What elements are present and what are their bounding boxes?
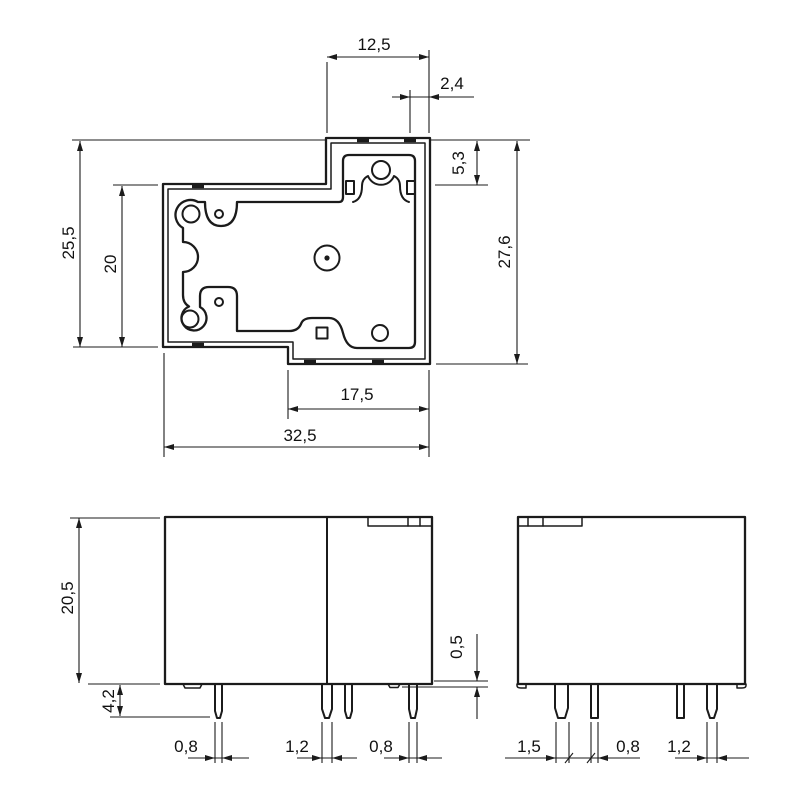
pin-hole-top-left xyxy=(183,206,200,223)
front-pin-1 xyxy=(215,684,222,718)
front-case-outline xyxy=(165,517,432,684)
dim-front-pin1-width: 0,8 xyxy=(174,737,198,756)
dim-case-height: 20,5 xyxy=(58,581,77,614)
top-view-inner-wall xyxy=(168,143,425,359)
terminal-slot-right xyxy=(407,181,415,194)
dim-side-pin1-width: 1,5 xyxy=(517,737,541,756)
front-view xyxy=(165,517,432,718)
dim-side-pin4-width: 1,2 xyxy=(667,737,691,756)
dim-standoff-height: 0,5 xyxy=(447,635,466,659)
terminal-slot-left xyxy=(346,181,354,194)
dim-vent-offset: 2,4 xyxy=(440,74,464,93)
side-pin-1 xyxy=(555,684,568,718)
front-pin-2 xyxy=(322,684,332,718)
dim-top-step-width: 12,5 xyxy=(357,35,390,54)
dim-inner-height: 20 xyxy=(101,255,120,274)
small-hole-top-left xyxy=(215,210,223,218)
dim-front-pin4-width: 0,8 xyxy=(369,737,393,756)
relay-dimensional-drawing: 12,5 2,4 5,3 27,6 25,5 20 17,5 32,5 xyxy=(0,0,800,800)
pin-hole-top-right xyxy=(372,161,390,179)
dim-side-pin2-width: 0,8 xyxy=(616,737,640,756)
dim-bottom-step-width: 17,5 xyxy=(340,385,373,404)
side-case-outline xyxy=(518,517,745,684)
small-hole-bottom-left xyxy=(215,298,223,306)
top-view xyxy=(163,138,430,364)
terminal-slot-square xyxy=(317,328,328,339)
center-boss-pin xyxy=(324,255,329,260)
side-pin-3 xyxy=(677,684,684,718)
dim-pin-length: 4,2 xyxy=(99,689,118,713)
side-view xyxy=(517,517,746,718)
front-pin-4 xyxy=(409,684,417,718)
front-pin-3 xyxy=(345,684,352,718)
side-pin-2 xyxy=(591,684,598,718)
side-pin-4 xyxy=(707,684,717,718)
dim-left-height: 25,5 xyxy=(59,226,78,259)
pin-hole-bottom-right xyxy=(372,325,388,341)
dim-overall-width: 32,5 xyxy=(283,426,316,445)
front-vent-recess xyxy=(368,517,431,526)
dim-step-height: 5,3 xyxy=(449,151,468,175)
dimensions: 12,5 2,4 5,3 27,6 25,5 20 17,5 32,5 xyxy=(58,35,749,763)
wall-mark-dashes xyxy=(192,141,416,362)
pin-hole-bottom-left xyxy=(182,311,199,328)
dim-front-pin2-width: 1,2 xyxy=(285,737,309,756)
side-vent-recess xyxy=(518,517,582,526)
drawing-canvas: 12,5 2,4 5,3 27,6 25,5 20 17,5 32,5 xyxy=(0,0,800,800)
dim-overall-height: 27,6 xyxy=(495,235,514,268)
